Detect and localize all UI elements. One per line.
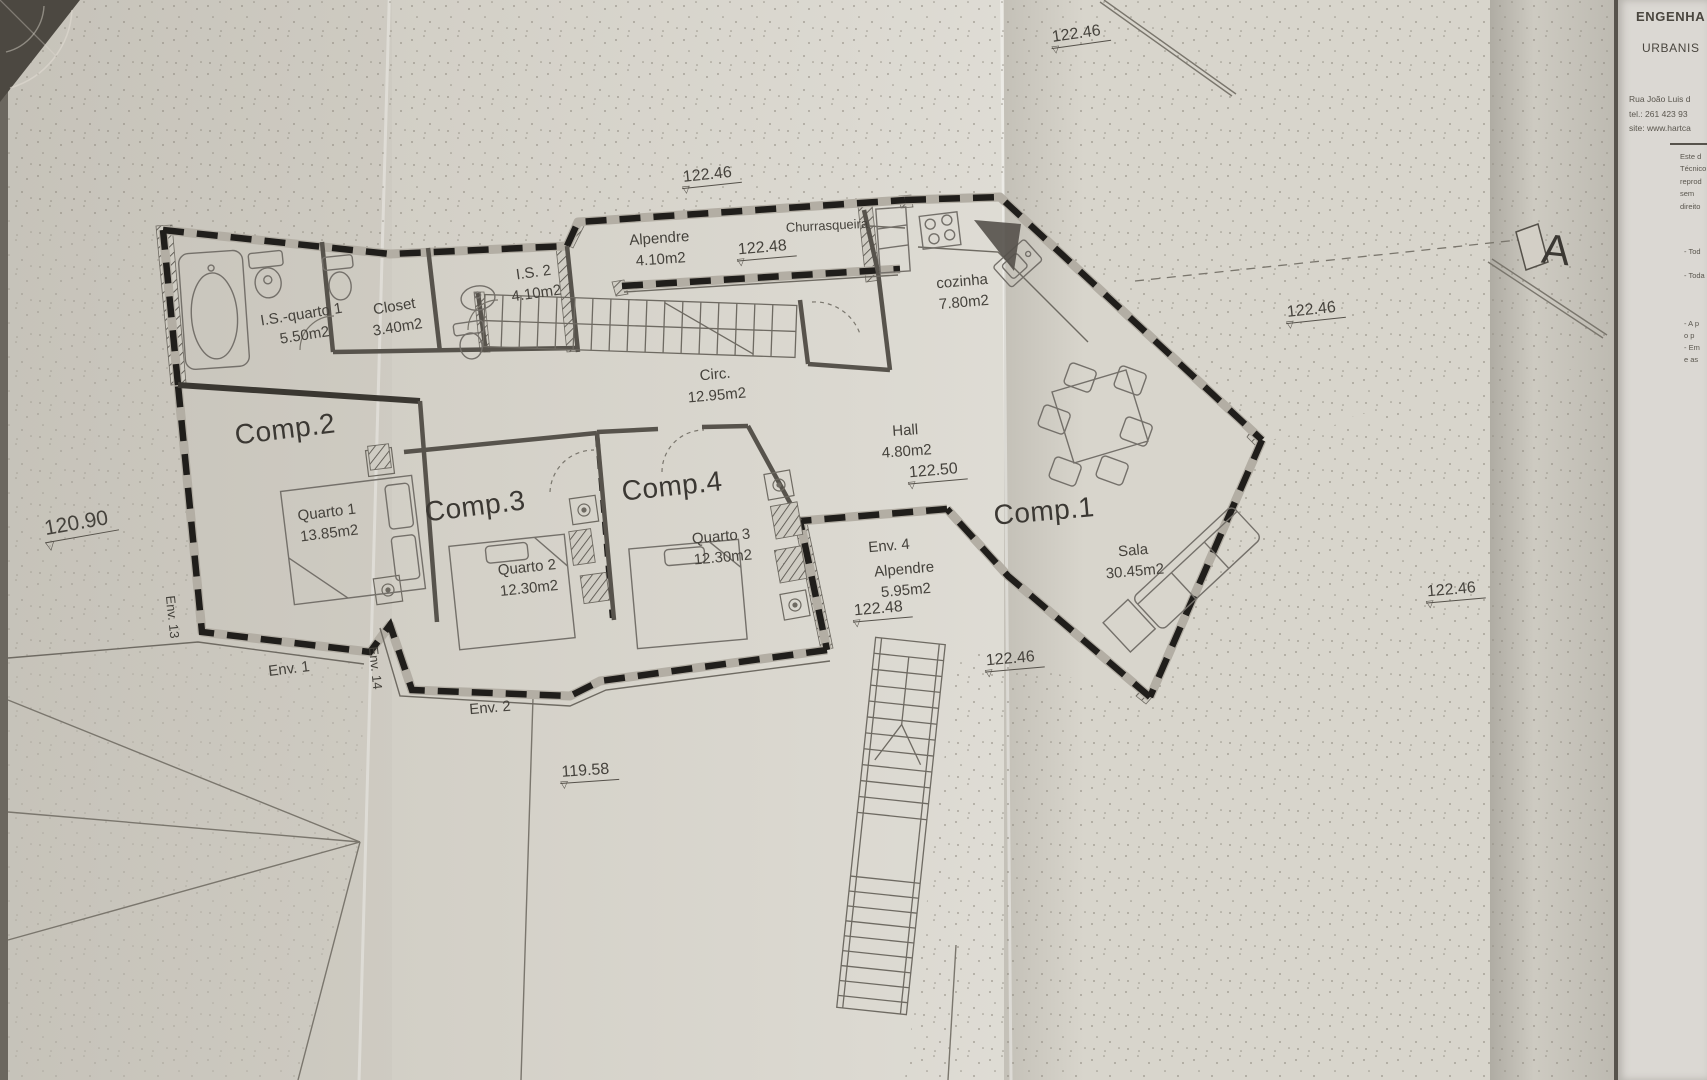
room-label-is2: I.S. 2 4.10m2 xyxy=(507,259,562,308)
room-label-closet: Closet 3.40m2 xyxy=(368,292,424,341)
room-label-env2: Env. 2 xyxy=(468,696,511,721)
level-marker-south: 119.58▽ xyxy=(559,760,619,784)
title-block-items: - Tod - Toda - A p o p - Em e as xyxy=(1684,246,1705,366)
dining-table-icon xyxy=(1037,362,1153,487)
level-triangle-icon: ▽ xyxy=(560,780,568,791)
barbecue-icon xyxy=(876,207,910,273)
room-label-quarto1: Quarto 1 13.85m2 xyxy=(296,499,359,548)
title-block-address: Rua João Luis d tel.: 261 423 93 site: w… xyxy=(1629,92,1691,136)
wall-solid xyxy=(178,385,420,401)
title-block-company: ENGENHA xyxy=(1636,9,1705,24)
floor-plan-photo: Alpendre 4.10m2 Churrasqueira I.S. 2 4.1… xyxy=(0,0,1707,1080)
title-block-divider xyxy=(1670,143,1707,145)
title-block-page: ENGENHA URBANIS Rua João Luis d tel.: 26… xyxy=(1618,0,1707,1080)
room-name: Circ. xyxy=(699,363,732,387)
level-triangle-icon: ▽ xyxy=(853,619,862,630)
level-triangle-icon: ▽ xyxy=(45,539,56,552)
room-label-quarto3: Quarto 3 12.30m2 xyxy=(691,524,753,571)
room-area: 7.80m2 xyxy=(938,290,990,315)
level-triangle-icon: ▽ xyxy=(1051,45,1060,56)
room-label-quarto2: Quarto 2 12.30m2 xyxy=(497,554,559,602)
room-label-cozinha: cozinha 7.80m2 xyxy=(935,269,990,315)
room-area: 4.10m2 xyxy=(635,247,686,271)
toilet-icon xyxy=(248,250,287,299)
level-triangle-icon: ▽ xyxy=(985,669,994,680)
bathtub-icon xyxy=(178,250,250,370)
title-block-notes: Este d Técnico reprod sem direito xyxy=(1680,151,1706,213)
room-label-alpendre-top: Alpendre 4.10m2 xyxy=(629,226,692,272)
room-label-env4: Env. 4 xyxy=(867,534,910,559)
stove-icon xyxy=(919,212,961,249)
level-triangle-icon: ▽ xyxy=(737,258,746,269)
room-name: Hall xyxy=(892,419,919,442)
level-triangle-icon: ▽ xyxy=(1426,600,1435,611)
room-area: 4.80m2 xyxy=(881,439,932,463)
title-block-subtitle: URBANIS xyxy=(1642,41,1700,55)
level-triangle-icon: ▽ xyxy=(908,481,917,492)
section-marker-a: A xyxy=(1540,225,1573,276)
room-label-env4-alpendre: Alpendre 5.95m2 xyxy=(873,556,936,603)
room-label-hall: Hall 4.80m2 xyxy=(880,418,933,463)
room-name: Sala xyxy=(1117,539,1149,563)
room-label-circ: Circ. 12.95m2 xyxy=(685,362,747,409)
level-triangle-icon: ▽ xyxy=(1286,320,1295,331)
floor-plan-drawing xyxy=(0,0,1707,1080)
room-name: Env. 4 xyxy=(867,534,910,559)
level-triangle-icon: ▽ xyxy=(682,185,691,196)
room-name: Env. 2 xyxy=(468,696,511,721)
room-label-sala: Sala 30.45m2 xyxy=(1103,538,1165,585)
